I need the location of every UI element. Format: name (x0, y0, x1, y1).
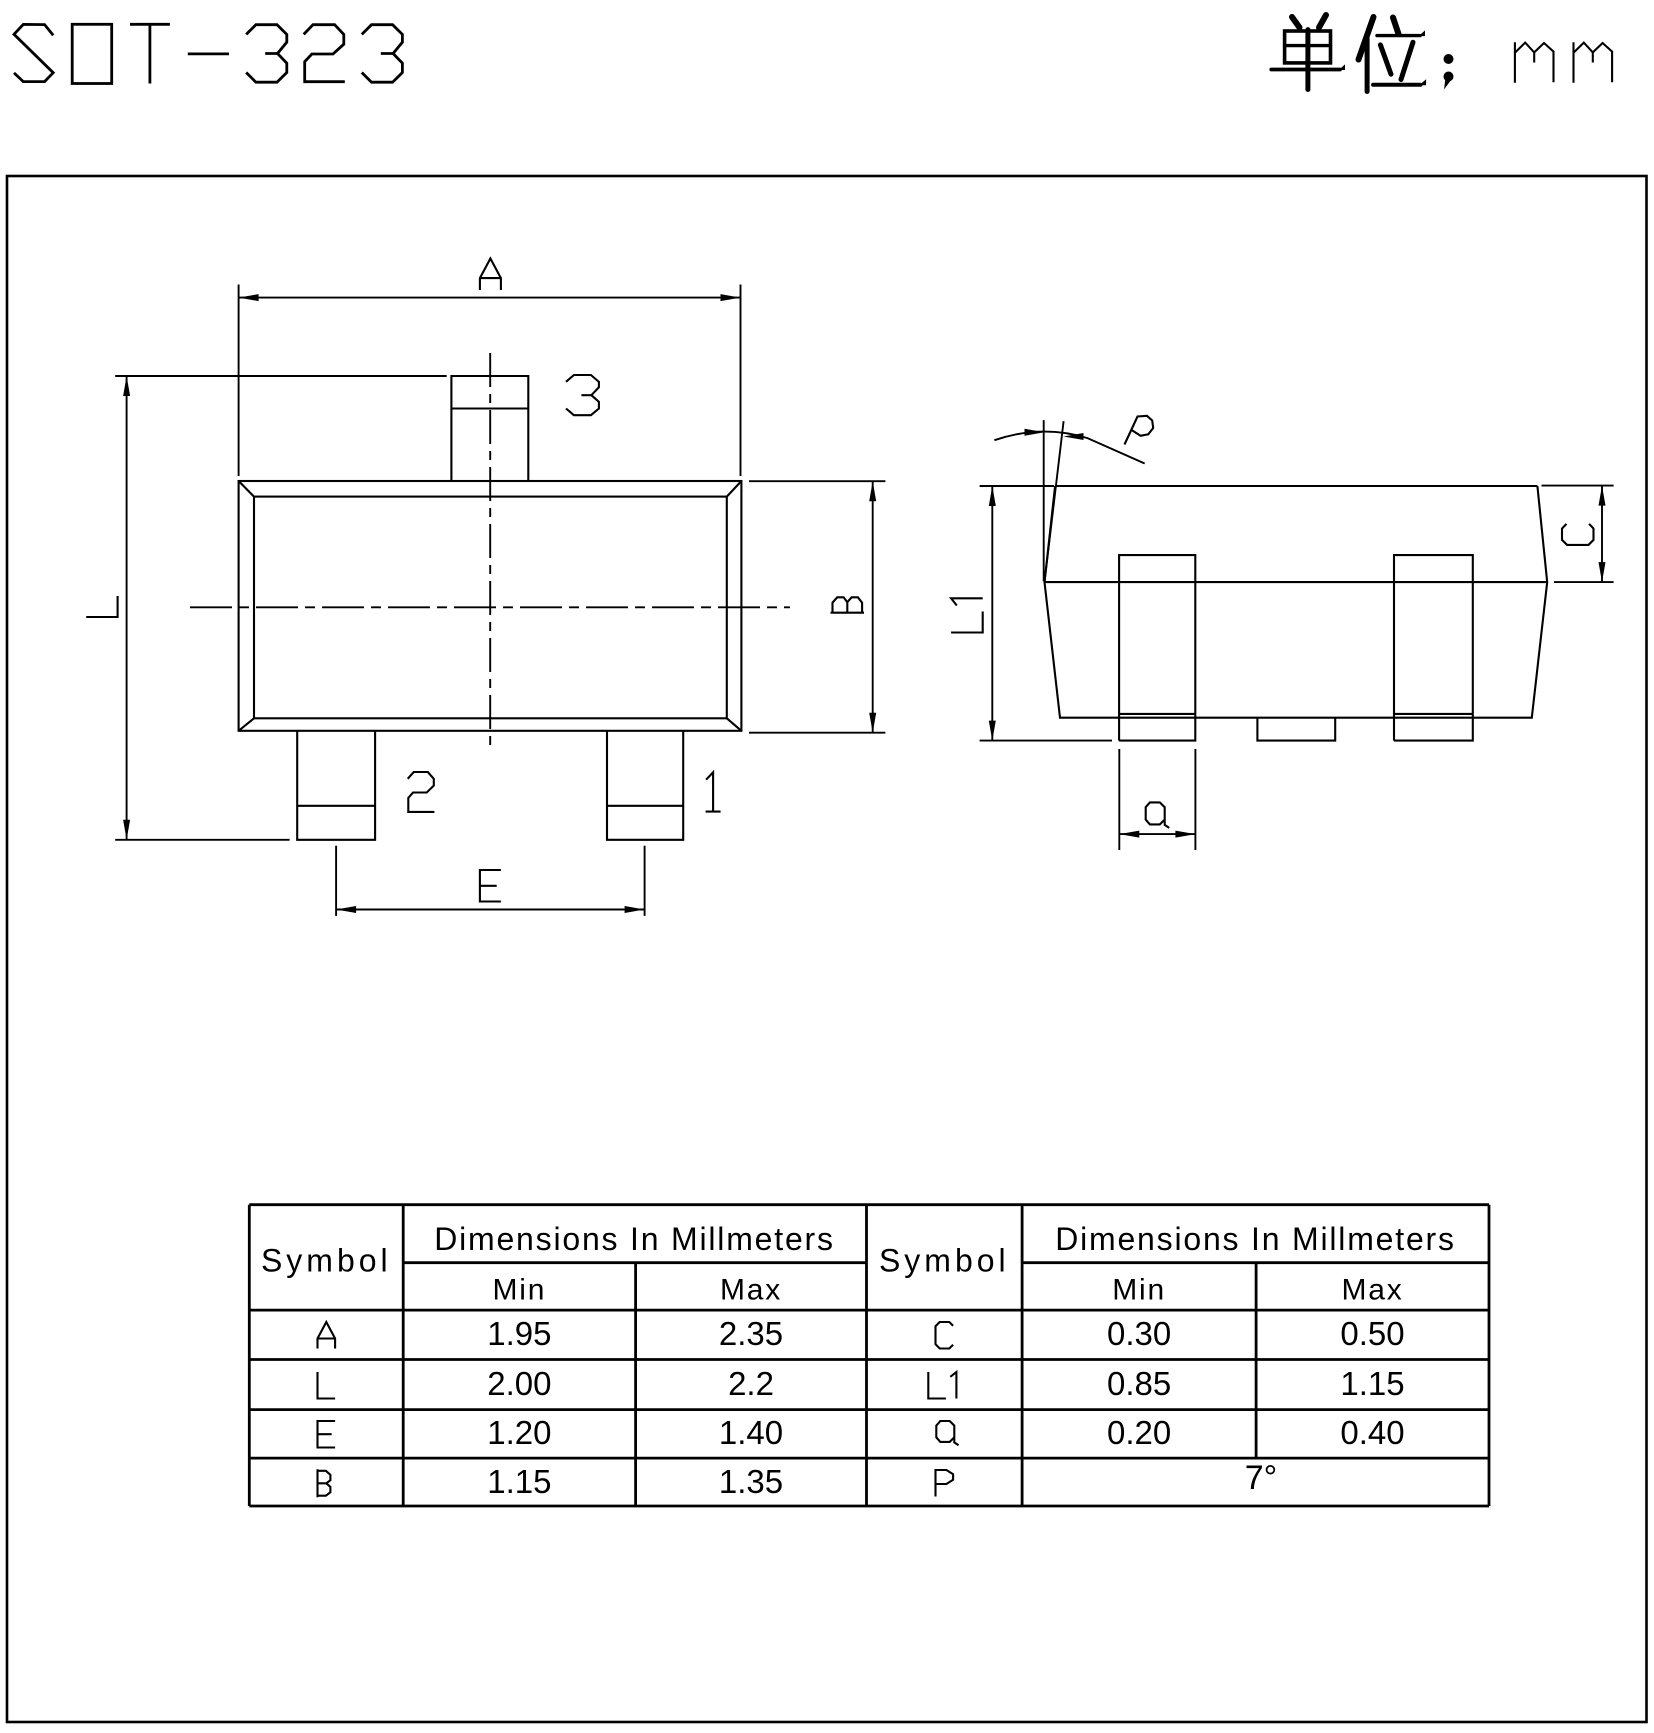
svg-text:0.40: 0.40 (1340, 1414, 1404, 1451)
svg-text:Symbol: Symbol (261, 1242, 392, 1278)
svg-text:Symbol: Symbol (879, 1242, 1010, 1278)
svg-text:1.20: 1.20 (487, 1414, 551, 1451)
svg-text:0.85: 0.85 (1107, 1365, 1171, 1402)
svg-text:1.15: 1.15 (487, 1463, 551, 1500)
svg-text:0.20: 0.20 (1107, 1414, 1171, 1451)
svg-text:0.30: 0.30 (1107, 1315, 1171, 1352)
svg-text:2.35: 2.35 (719, 1315, 783, 1352)
svg-text:0.50: 0.50 (1340, 1315, 1404, 1352)
svg-text:2.2: 2.2 (728, 1365, 774, 1402)
svg-text:Max: Max (720, 1274, 782, 1307)
svg-text:Min: Min (1112, 1274, 1166, 1307)
svg-text:2.00: 2.00 (487, 1365, 551, 1402)
svg-text:1.15: 1.15 (1340, 1365, 1404, 1402)
svg-text:Dimensions In Millmeters: Dimensions In Millmeters (1055, 1221, 1456, 1257)
svg-text:Max: Max (1341, 1274, 1403, 1307)
svg-text:1.40: 1.40 (719, 1414, 783, 1451)
svg-text:1.35: 1.35 (719, 1463, 783, 1500)
svg-text:7°: 7° (1245, 1459, 1278, 1497)
svg-text:Min: Min (493, 1274, 547, 1307)
svg-text:1.95: 1.95 (487, 1315, 551, 1352)
svg-text:Dimensions In Millmeters: Dimensions In Millmeters (434, 1221, 835, 1257)
